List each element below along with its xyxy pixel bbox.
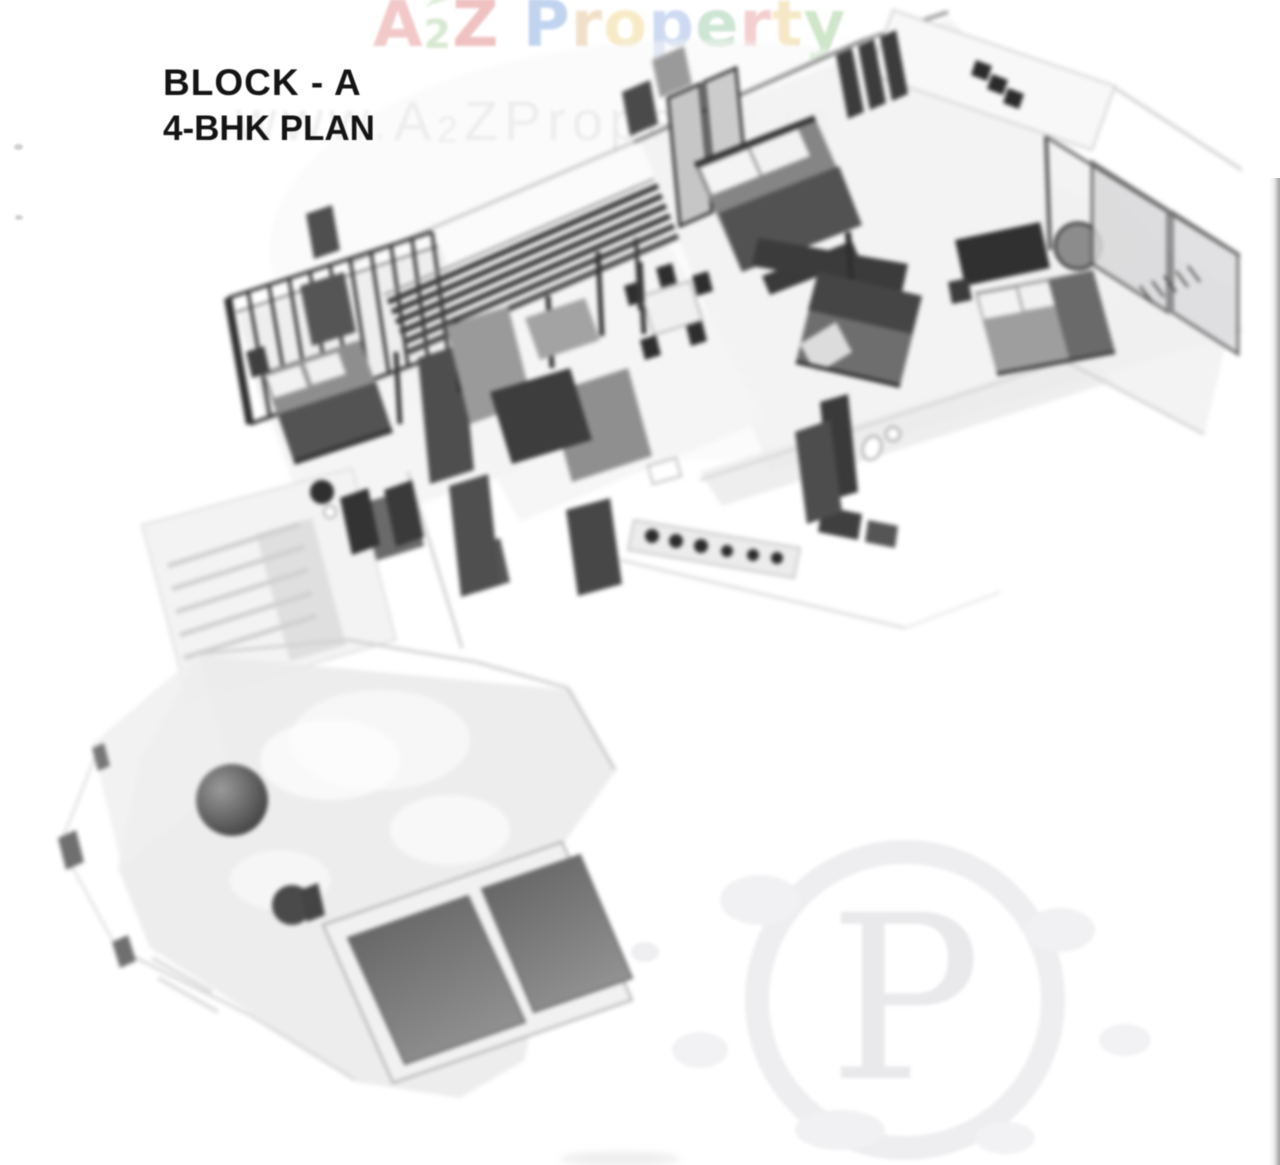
block-label: BLOCK - A xyxy=(163,64,375,101)
plan-title-block: BLOCK - A 4-BHK PLAN xyxy=(163,64,375,146)
scan-speck xyxy=(15,215,23,220)
scanned-floor-plan-page: www.A2ZProperty.in A2Z Property P xyxy=(0,0,1280,1165)
scan-edge-right xyxy=(1269,178,1280,1165)
plan-type-label: 4-BHK PLAN xyxy=(163,111,375,146)
scan-speck xyxy=(14,144,23,150)
scan-smudge xyxy=(560,1152,680,1165)
floor-plan-illustration xyxy=(0,0,1280,1165)
terrace-plant-pot-large xyxy=(196,764,268,836)
